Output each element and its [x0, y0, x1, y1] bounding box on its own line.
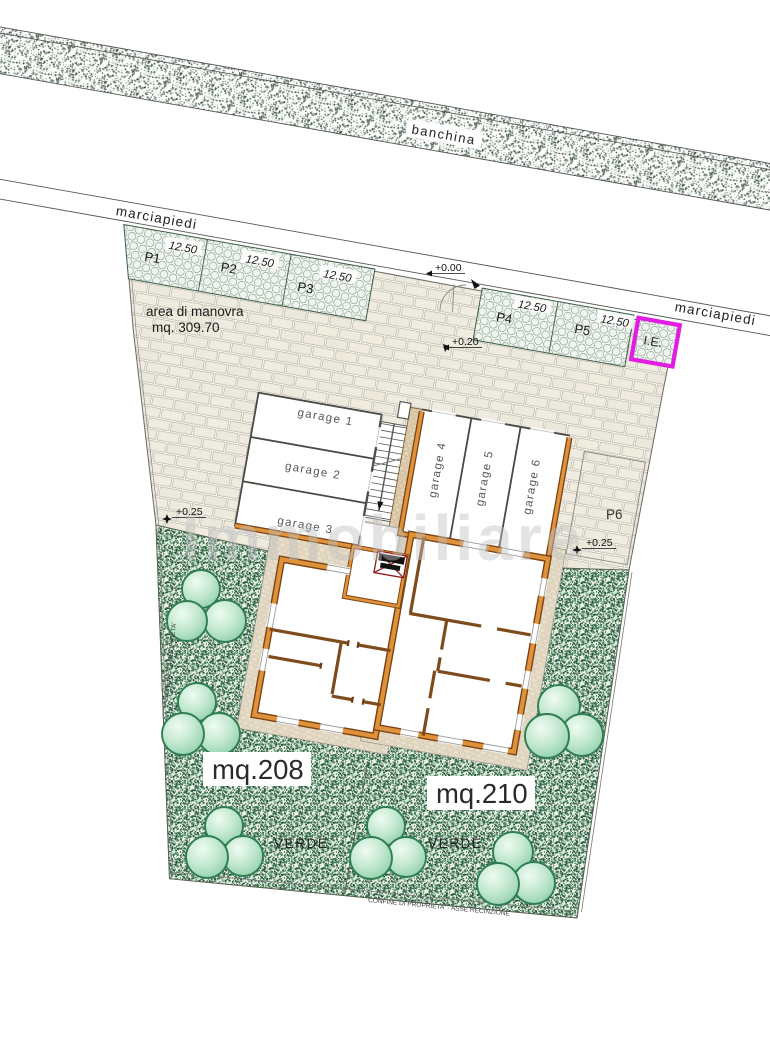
svg-text:mq.210: mq.210: [436, 778, 528, 809]
svg-text:P2: P2: [220, 259, 238, 277]
svg-text:mq.208: mq.208: [212, 754, 304, 785]
svg-text:P1: P1: [143, 249, 161, 267]
svg-text:+0.20: +0.20: [452, 336, 479, 348]
svg-text:+0.25: +0.25: [586, 537, 613, 549]
svg-text:P6: P6: [606, 507, 623, 522]
svg-text:area di manovra: area di manovra: [146, 304, 244, 319]
svg-text:VERDE: VERDE: [274, 836, 329, 851]
svg-text:VERDE: VERDE: [428, 836, 483, 851]
svg-text:P3: P3: [296, 279, 314, 297]
svg-text:Immobiliare: Immobiliare: [182, 502, 585, 574]
svg-text:P5: P5: [573, 321, 591, 339]
svg-text:P4: P4: [495, 309, 513, 327]
svg-text:mq. 309.70: mq. 309.70: [152, 320, 220, 335]
svg-text:+0.00: +0.00: [435, 262, 462, 274]
